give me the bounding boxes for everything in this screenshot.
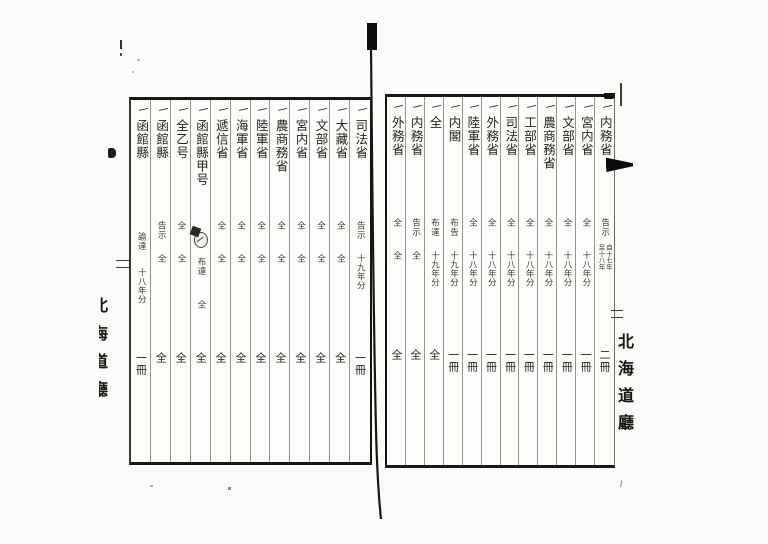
correction-seal-icon: [194, 232, 208, 248]
year-note: 全: [177, 254, 186, 263]
doc-type-note: 全: [468, 218, 477, 228]
tally-mark: 一: [274, 104, 286, 116]
ink-exclamation-mark: [120, 40, 122, 49]
page-edge-ink-blot: [108, 148, 116, 158]
right-ledger-page: 一内務省告示自十七年至十八年二冊一宮内省全十八年分一冊一文部省全十八年分一冊一農…: [385, 94, 615, 468]
double-dash-mark: [611, 310, 623, 318]
year-note: 十八年分: [525, 251, 534, 287]
year-note: 全: [316, 254, 325, 263]
year-note: 全: [236, 254, 245, 263]
volume-count: 一冊: [580, 349, 591, 373]
paper-speck: [132, 71, 134, 73]
year-note: 全: [256, 254, 265, 263]
doc-type-note: 全: [581, 218, 590, 228]
volume-count: 一冊: [561, 349, 572, 373]
volume-count: 全: [155, 352, 166, 364]
year-note: 十八年分: [468, 251, 477, 287]
ministry-name: 全: [428, 116, 441, 130]
volume-count: 一冊: [355, 352, 366, 376]
tally-mark: 一: [542, 101, 554, 113]
doc-type-note: 全: [562, 218, 571, 228]
volume-count: 二冊: [599, 349, 610, 373]
year-note: 十八年分: [137, 268, 146, 304]
ledger-column: 一函館縣告示全全: [150, 100, 171, 462]
volume-count: 全: [215, 352, 226, 364]
tally-mark: 一: [428, 101, 440, 113]
volume-count: 一冊: [523, 349, 534, 373]
doc-type-note: 布達: [430, 218, 439, 237]
volume-count: 全: [410, 349, 421, 361]
doc-type-note: 全: [506, 218, 515, 228]
volume-count: 全: [335, 352, 346, 364]
volume-count: 全: [275, 352, 286, 364]
ledger-column: 一司法省告示十九年分一冊: [349, 100, 370, 462]
ledger-column: 一函館縣諭達十八年分一冊: [131, 100, 151, 462]
ministry-name: 遞信省: [214, 119, 227, 160]
volume-count: 一冊: [448, 349, 459, 373]
doc-type-note: 告示: [600, 218, 609, 237]
ministry-name: 外務省: [390, 116, 403, 157]
border-corner-blot: [604, 93, 615, 99]
year-range: 自十七年至十八年: [598, 244, 612, 270]
ministry-name: 内閣: [447, 116, 460, 143]
double-dash-mark: [116, 260, 129, 268]
year-note: 十八年分: [581, 251, 590, 287]
ledger-column: 一遞信省全全全: [210, 100, 231, 462]
tally-mark: 一: [409, 101, 421, 113]
doc-type-note: 全: [525, 218, 534, 228]
year-note: 十八年分: [487, 251, 496, 287]
doc-type-note: 全: [276, 221, 285, 231]
tally-mark: 一: [334, 104, 346, 116]
ledger-column: 一文部省全十八年分一冊: [556, 97, 576, 465]
year-note: 全: [157, 254, 166, 263]
ministry-name: 海軍省: [234, 119, 247, 160]
ministry-name: 大藏省: [334, 119, 347, 160]
doc-type-note: 全: [392, 218, 401, 228]
tally-mark: 一: [235, 104, 247, 116]
paper-speck: [137, 59, 140, 61]
tally-mark: 一: [466, 101, 478, 113]
year-note: 全: [276, 254, 285, 263]
tally-mark: 一: [391, 101, 403, 113]
ministry-name: 工部省: [523, 116, 536, 157]
volume-count: 全: [175, 352, 186, 364]
ledger-column: 一全布達十九年分全: [424, 97, 444, 465]
ministry-name: 函館縣甲号: [194, 119, 207, 187]
tally-mark: 一: [485, 101, 497, 113]
volume-count: 全: [315, 352, 326, 364]
ledger-column: 一内務省告示全全: [405, 97, 425, 465]
ledger-column: 一陸軍省全全全: [250, 100, 271, 462]
ledger-column: 一内務省告示自十七年至十八年二冊: [594, 97, 614, 465]
page-corner-tick: [620, 83, 622, 106]
volume-count: 一冊: [486, 349, 497, 373]
volume-count: 一冊: [135, 352, 146, 376]
ledger-column: 一外務省全十八年分一冊: [481, 97, 501, 465]
volume-count: 全: [255, 352, 266, 364]
year-note: 十九年分: [356, 254, 365, 290]
year-note: 全: [336, 254, 345, 263]
volume-count: 一冊: [542, 349, 553, 373]
ledger-column: 一全乙号全全全: [170, 100, 191, 462]
ministry-name: 司法省: [504, 116, 517, 157]
tally-mark: 一: [504, 101, 516, 113]
binding-bar-icon: [367, 23, 377, 50]
tally-mark: 一: [195, 104, 207, 116]
tally-mark: 一: [135, 104, 147, 116]
doc-type-note: 全: [544, 218, 553, 228]
tally-mark: 一: [561, 101, 573, 113]
ministry-name: 陸軍省: [466, 116, 479, 157]
ledger-column: 一宮内省全十八年分一冊: [575, 97, 595, 465]
tally-mark: 一: [523, 101, 535, 113]
ministry-name: 文部省: [560, 116, 573, 157]
ledger-column: 一農商務省全十八年分一冊: [537, 97, 557, 465]
doc-type-note: 告示: [356, 221, 365, 240]
doc-type-note: 全: [256, 221, 265, 231]
ink-exclamation-dot: [120, 53, 122, 56]
tally-mark: 一: [599, 101, 611, 113]
ledger-column: 一大藏省全全全: [329, 100, 350, 462]
doc-type-note: 全: [177, 221, 186, 231]
volume-count: 一冊: [504, 349, 515, 373]
doc-type-note: 全: [316, 221, 325, 231]
year-note: 全: [411, 251, 420, 260]
tally-mark: 一: [215, 104, 227, 116]
tally-mark: 一: [294, 104, 306, 116]
ministry-name: 函館縣: [155, 119, 168, 160]
left-ledger-page: 一司法省告示十九年分一冊一大藏省全全全一文部省全全全一宮内省全全全一農商務省全全…: [129, 97, 372, 465]
doc-type-note: 全: [216, 221, 225, 231]
tally-mark: 一: [314, 104, 326, 116]
ministry-name: 函館縣: [135, 119, 148, 160]
year-note: 十八年分: [562, 251, 571, 287]
tally-mark: 一: [580, 101, 592, 113]
year-note: 十八年分: [506, 251, 515, 287]
doc-type-note: 諭達: [137, 232, 146, 251]
ministry-name: 内務省: [409, 116, 422, 157]
doc-type-note: 告示: [411, 218, 420, 237]
ledger-column: 一農商務省全全全: [269, 100, 290, 462]
doc-type-note: 全: [336, 221, 345, 231]
volume-count: 一冊: [467, 349, 478, 373]
ledger-column: 一工部省全十八年分一冊: [518, 97, 538, 465]
ledger-column: 一外務省全全全: [387, 97, 406, 465]
doc-type-note: 告示: [157, 221, 166, 240]
ledger-column: 一函館縣甲号布達全全: [190, 100, 211, 462]
year-note: 十九年分: [430, 251, 439, 287]
volume-count: 全: [391, 349, 402, 361]
ledger-column: 一陸軍省全十八年分一冊: [462, 97, 482, 465]
doc-type-note: 全: [296, 221, 305, 231]
ledger-column: 一内閣布告十九年分一冊: [443, 97, 463, 465]
year-note: 全: [392, 251, 401, 260]
ministry-name: 宮内省: [579, 116, 592, 157]
ministry-name: 外務省: [485, 116, 498, 157]
ministry-name: 農商務省: [274, 119, 287, 173]
year-note: 全: [216, 254, 225, 263]
year-note: 十九年分: [449, 251, 458, 287]
left-margin-clip: 北海道廳: [99, 297, 112, 462]
volume-count: 全: [429, 349, 440, 361]
ministry-name: 宮内省: [294, 119, 307, 160]
volume-count: 全: [235, 352, 246, 364]
binding-line: [0, 0, 768, 544]
doc-type-note: 布告: [449, 218, 458, 237]
black-wedge-mark: [606, 157, 633, 172]
ledger-column: 一文部省全全全: [309, 100, 330, 462]
doc-type-note: 全: [487, 218, 496, 228]
year-note: 全: [296, 254, 305, 263]
right-margin-office-title: 北海道廳: [616, 333, 632, 441]
ledger-column: 一海軍省全全全: [230, 100, 251, 462]
ministry-name: 農商務省: [542, 116, 555, 170]
doc-type-note: 布達: [196, 257, 205, 276]
volume-count: 全: [295, 352, 306, 364]
tally-mark: 一: [255, 104, 267, 116]
ministry-name: 司法省: [354, 119, 367, 160]
ledger-column: 一宮内省全全全: [289, 100, 310, 462]
ministry-name: 文部省: [314, 119, 327, 160]
volume-count: 全: [195, 352, 206, 364]
year-note: 十八年分: [544, 251, 553, 287]
tally-mark: 一: [175, 104, 187, 116]
paper-speck: [228, 487, 231, 490]
paper-speck: [150, 485, 153, 487]
doc-type-note: 全: [236, 221, 245, 231]
year-note: 全: [196, 300, 205, 309]
small-ink-tail: [620, 480, 624, 487]
ledger-column: 一司法省全十八年分一冊: [500, 97, 520, 465]
ministry-name: 全乙号: [175, 119, 188, 160]
tally-mark: 一: [354, 104, 366, 116]
ministry-name: 内務省: [598, 116, 611, 157]
left-margin-office-title-partial: 北海道廳: [99, 297, 106, 409]
ministry-name: 陸軍省: [254, 119, 267, 160]
tally-mark: 一: [447, 101, 459, 113]
tally-mark: 一: [155, 104, 167, 116]
